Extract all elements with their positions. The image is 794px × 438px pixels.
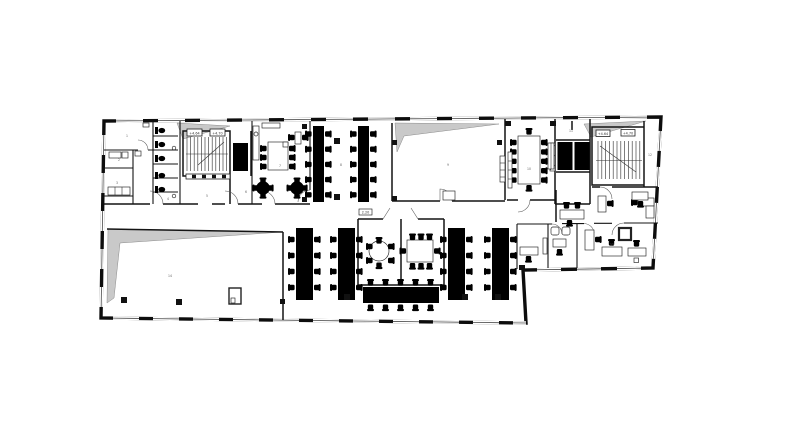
desk-return (646, 206, 654, 218)
elevator-west (233, 143, 248, 171)
column (302, 124, 307, 129)
column (392, 196, 397, 201)
desk (602, 247, 622, 256)
floor-plan-canvas: +4.64 +4.70 +4.64 +4.70 (0, 0, 794, 438)
room-number: 1 (126, 134, 128, 138)
column (495, 294, 501, 300)
elevator-east-1 (558, 142, 573, 170)
column (176, 299, 182, 305)
desk (598, 196, 606, 212)
sink-icon (172, 146, 176, 150)
room-number: 3 (116, 181, 118, 185)
desk (520, 247, 538, 255)
column (280, 299, 285, 304)
column (392, 140, 397, 145)
room-number: 9 (447, 163, 449, 167)
elevation-label: +4.70 (212, 131, 222, 135)
room-number: 2 (118, 158, 120, 162)
column (121, 297, 127, 303)
bench (108, 187, 130, 195)
desk (585, 230, 594, 250)
room-number: 11 (569, 129, 573, 133)
conference-table (518, 136, 540, 184)
sink-icon (172, 194, 176, 198)
counter (253, 126, 259, 160)
column (334, 194, 340, 200)
pier (143, 123, 149, 127)
pier (550, 121, 556, 126)
pier (519, 265, 525, 270)
coffee-table (553, 239, 566, 247)
meeting-table (407, 240, 433, 262)
armchair (562, 227, 570, 235)
floor-plan-page: +4.64 +4.70 +4.64 +4.70 (0, 0, 794, 438)
shaft-box (619, 228, 631, 240)
room-number: 7 (279, 164, 281, 168)
closet (443, 191, 455, 200)
pier (505, 121, 511, 126)
column (302, 197, 307, 202)
shelf (543, 238, 547, 254)
column (462, 294, 468, 300)
column (344, 294, 350, 300)
hall-south (229, 288, 241, 304)
room-tag: 2.20 (362, 211, 370, 215)
room-number: 4 (167, 197, 169, 201)
column (334, 138, 340, 144)
room-number: 6 (245, 190, 247, 194)
side-table (295, 132, 301, 144)
cabinet (122, 152, 128, 158)
column (497, 140, 502, 145)
room-number: 10 (527, 167, 531, 171)
desk (560, 210, 584, 219)
elevation-label: +4.70 (623, 131, 633, 135)
elevation-label: +4.64 (189, 131, 199, 135)
room-number: 12 (648, 153, 652, 157)
room-number: 14 (168, 274, 172, 278)
room-number: 8 (340, 163, 342, 167)
elevator-east-2 (575, 142, 590, 170)
elevation-label: +4.64 (598, 132, 608, 136)
room-number: 13 (610, 243, 614, 247)
counter (262, 123, 280, 128)
armchair (551, 227, 559, 235)
column (634, 258, 639, 263)
room-number: 5 (206, 194, 208, 198)
desk (628, 248, 646, 256)
desk (632, 192, 648, 200)
pier (135, 151, 141, 156)
wall-cabinet (500, 156, 505, 182)
sink-icon (254, 132, 258, 136)
